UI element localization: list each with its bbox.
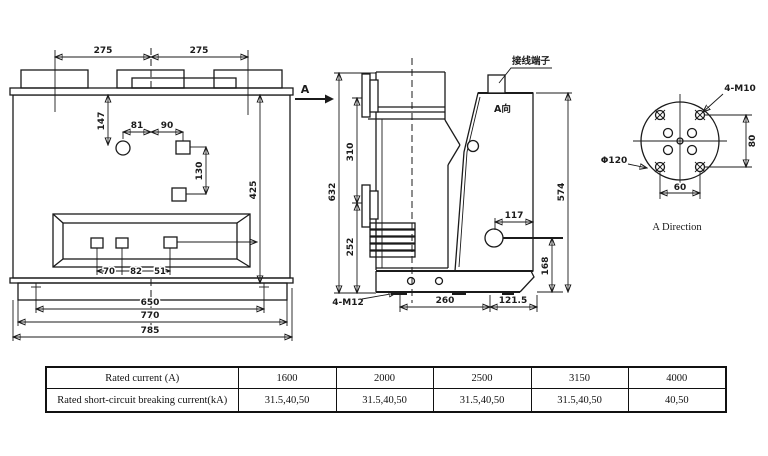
dim-147: 147	[97, 112, 107, 131]
bellows	[370, 223, 415, 257]
dim-574: 574	[557, 183, 567, 202]
dim-80: 80	[748, 135, 758, 148]
dim-275-right: 275	[190, 46, 209, 56]
table-cell: 40,50	[628, 389, 726, 413]
table-cell: 31.5,40,50	[433, 389, 531, 413]
dim-82: 82	[130, 267, 142, 277]
table-cell: 1600	[238, 367, 336, 389]
dim-310: 310	[346, 143, 356, 162]
dim-650: 650	[141, 298, 160, 308]
dim-130: 130	[195, 162, 205, 181]
frame-large-hole	[485, 229, 503, 247]
dim-90: 90	[161, 121, 174, 131]
a-direction-view: 4-M10 Φ120 80 60 A Direction	[601, 84, 758, 233]
base-bolt-mark-left	[31, 283, 41, 291]
engineering-drawing-sheet: 275 275 147 81 90 130 425	[0, 0, 768, 456]
dim-632: 632	[328, 183, 338, 202]
table-row-breaking-current: Rated short-circuit breaking current(kA)…	[46, 389, 726, 413]
label-4-m10: 4-M10	[724, 84, 755, 94]
lower-terminal-stub	[370, 191, 378, 219]
dim-425: 425	[249, 181, 259, 200]
table-cell: 31.5,40,50	[531, 389, 628, 413]
dim-260: 260	[436, 296, 455, 306]
pole-column	[362, 58, 460, 303]
table-cell: 4000	[628, 367, 726, 389]
dim-168: 168	[541, 257, 551, 276]
dim-60: 60	[674, 183, 687, 193]
side-view: A 632 310 252	[295, 55, 572, 312]
dim-117: 117	[505, 211, 524, 221]
a-direction-caption: A Direction	[652, 222, 702, 233]
ratings-table: Rated current (A) 1600 2000 2500 3150 40…	[45, 366, 727, 413]
base-bolt-hole-2	[436, 278, 443, 285]
dim-70: 70	[103, 267, 115, 277]
dim-770: 770	[141, 311, 160, 321]
upper-terminal-pad	[362, 74, 370, 117]
front-top-plate	[10, 88, 293, 95]
table-cell: 31.5,40,50	[336, 389, 433, 413]
frame-small-hole	[468, 141, 479, 152]
base-bolt-hole-1	[408, 278, 415, 285]
table-row-rated-current: Rated current (A) 1600 2000 2500 3150 40…	[46, 367, 726, 389]
dim-121-5: 121.5	[499, 296, 527, 306]
row-label: Rated short-circuit breaking current(kA)	[46, 389, 238, 413]
label-dia-120: Φ120	[601, 156, 627, 166]
table-cell: 3150	[531, 367, 628, 389]
table-cell: 31.5,40,50	[238, 389, 336, 413]
upper-terminal-stub	[370, 80, 378, 112]
terminal-callout-label: 接线端子	[512, 55, 551, 67]
dim-81: 81	[131, 121, 144, 131]
dim-51: 51	[154, 267, 166, 277]
base-bolt-mark-right	[259, 283, 269, 291]
lower-terminal-pad	[362, 185, 370, 227]
drawing-canvas: 275 275 147 81 90 130 425	[0, 0, 768, 360]
a-view-label: A向	[494, 103, 511, 115]
front-left-tab	[21, 70, 88, 88]
table-cell: 2500	[433, 367, 531, 389]
side-base-bracket	[376, 271, 534, 295]
dim-275-left: 275	[94, 46, 113, 56]
row-label: Rated current (A)	[46, 367, 238, 389]
dim-252: 252	[346, 238, 356, 257]
front-view: 275 275 147 81 90 130 425	[10, 46, 293, 341]
table-cell: 2000	[336, 367, 433, 389]
view-arrow-label: A	[301, 83, 310, 96]
view-direction-arrow-icon	[325, 95, 334, 104]
label-4-m12: 4-M12	[332, 298, 363, 308]
top-terminal-box	[488, 75, 505, 93]
dim-785: 785	[141, 326, 160, 336]
